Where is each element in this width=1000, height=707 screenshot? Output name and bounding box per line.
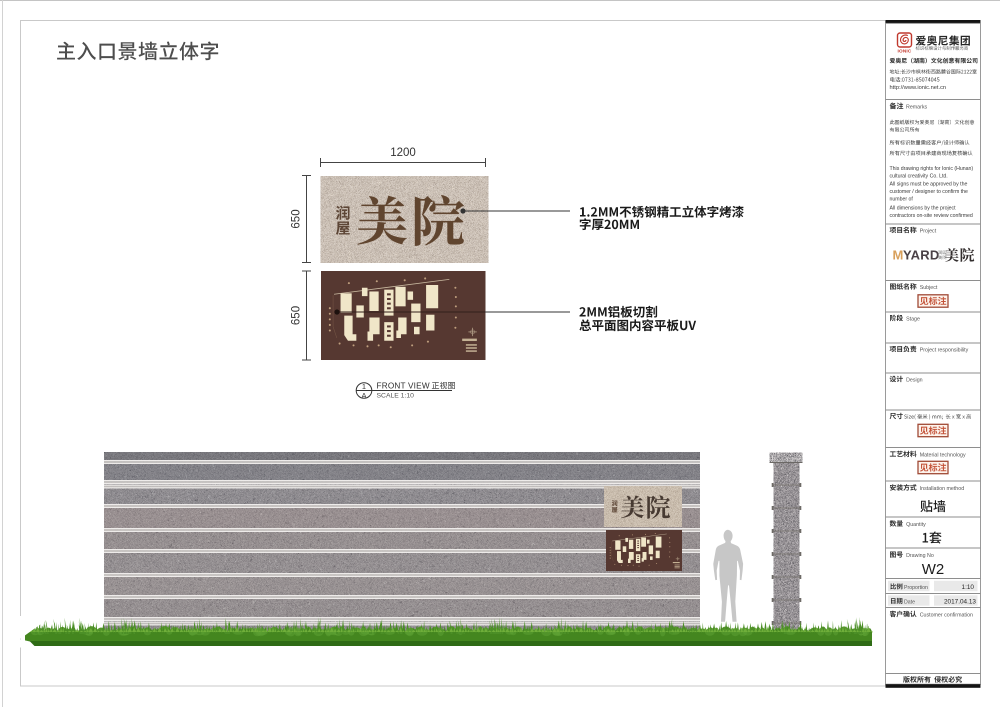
svg-text:All dimensions by the project: All dimensions by the project xyxy=(890,206,957,212)
svg-text:Proportion: Proportion xyxy=(904,585,928,591)
svg-text:Date: Date xyxy=(904,599,915,605)
svg-text:2017.04.13: 2017.04.13 xyxy=(944,598,976,605)
svg-text:IONIC: IONIC xyxy=(897,49,911,54)
svg-text:Stage: Stage xyxy=(906,317,920,323)
svg-text:FRONT VIEW: FRONT VIEW xyxy=(377,382,430,391)
svg-text:contractors on-site review con: contractors on-site review confirmed xyxy=(890,213,973,219)
svg-text:Subject: Subject xyxy=(920,285,938,291)
svg-text:YARD: YARD xyxy=(903,248,939,263)
svg-text:Quantity: Quantity xyxy=(906,522,926,528)
svg-text:Drawing No: Drawing No xyxy=(906,553,934,559)
svg-text:1: 1 xyxy=(362,382,366,391)
svg-text:Project: Project xyxy=(920,229,937,235)
svg-text:A: A xyxy=(361,391,366,400)
svg-text:650: 650 xyxy=(291,306,303,325)
svg-text:SCALE 1:10: SCALE 1:10 xyxy=(377,393,415,400)
svg-text:1200: 1200 xyxy=(390,147,416,159)
svg-text:Remarks: Remarks xyxy=(906,105,928,111)
svg-text:cultural creativity Co. Ltd.: cultural creativity Co. Ltd. xyxy=(890,174,948,180)
svg-text:Project responsibility: Project responsibility xyxy=(920,348,969,354)
svg-text:M: M xyxy=(893,248,904,263)
svg-text:Installation method: Installation method xyxy=(920,486,965,492)
svg-text:This drawing rights for Ionic: This drawing rights for Ionic (Hunan) xyxy=(890,166,974,172)
svg-text:650: 650 xyxy=(291,209,303,228)
svg-text:W2: W2 xyxy=(922,561,945,578)
svg-text:number of: number of xyxy=(890,197,914,203)
svg-text:All signs must be approved by: All signs must be approved by the xyxy=(890,182,968,188)
svg-text:Material technology: Material technology xyxy=(920,453,966,459)
svg-text:http://www.ionic.net.cn: http://www.ionic.net.cn xyxy=(890,85,947,91)
svg-text:customer / designer to confirm: customer / designer to confirm the xyxy=(890,189,969,195)
svg-text:1:10: 1:10 xyxy=(962,584,975,591)
svg-text:Design: Design xyxy=(906,378,923,384)
svg-text:Customer confirmation: Customer confirmation xyxy=(920,613,973,619)
